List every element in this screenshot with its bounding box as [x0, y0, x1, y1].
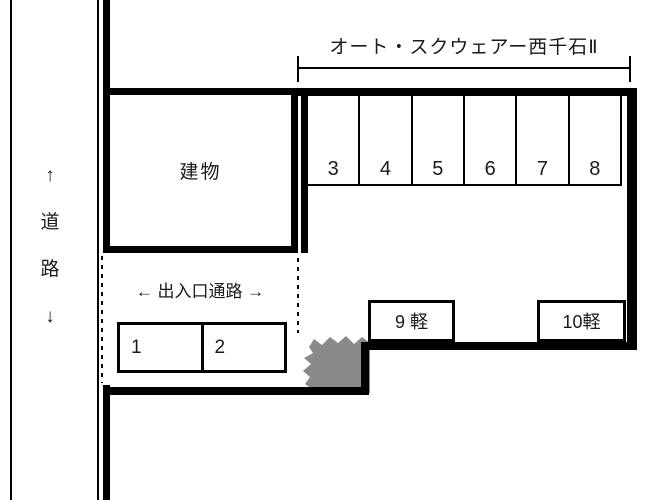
parking-space-3: 3	[308, 96, 360, 184]
parking-space-10-label: 10軽	[562, 308, 600, 334]
parking-lot-diagram: ↑ 道 路 ↓ オート・スクウェアー西千石Ⅱ 建物 3 4 5 6 7 8 9 …	[0, 0, 666, 500]
parking-space-9-label: 9 軽	[395, 308, 428, 334]
parking-space-10-kei: 10軽	[537, 300, 626, 342]
entrance-dashed-line-left	[101, 256, 103, 383]
dimension-tick-right	[629, 56, 631, 82]
parking-space-6: 6	[465, 96, 517, 184]
parking-space-9-kei: 9 軽	[368, 300, 455, 342]
parking-space-1: 1	[120, 325, 204, 370]
parking-space-2: 2	[204, 325, 285, 370]
parking-row-3-8: 3 4 5 6 7 8	[308, 96, 622, 186]
road-arrow-up-icon: ↑	[45, 166, 55, 186]
parking-space-4: 4	[360, 96, 412, 184]
boundary-left-lower-wall	[103, 385, 110, 500]
boundary-bottom-step-wall	[363, 342, 637, 350]
parking-space-7: 7	[517, 96, 569, 184]
building-label: 建物	[179, 157, 221, 184]
bush-polygon	[303, 336, 370, 393]
road-label: ↑ 道 路 ↓	[28, 166, 72, 327]
diagram-title: オート・スクウェアー西千石Ⅱ	[288, 32, 640, 59]
dimension-line	[298, 67, 630, 69]
parking-space-5: 5	[413, 96, 465, 184]
dimension-tick-left	[297, 56, 299, 82]
road-arrow-down-icon: ↓	[45, 307, 55, 327]
road-label-char-2: 路	[40, 260, 59, 280]
boundary-lower-wall	[103, 387, 369, 395]
bush-shape	[300, 333, 370, 395]
interior-wall	[301, 96, 308, 253]
road-outer-edge-line	[10, 0, 12, 500]
road-inner-edge-line	[97, 0, 99, 500]
parking-row-1-2: 1 2	[117, 322, 287, 373]
road-label-char-1: 道	[40, 213, 59, 233]
parking-space-8: 8	[570, 96, 620, 184]
boundary-right-wall	[627, 88, 637, 350]
passage-label: ← 出入口通路 →	[102, 277, 298, 302]
building-box: 建物	[103, 88, 298, 253]
